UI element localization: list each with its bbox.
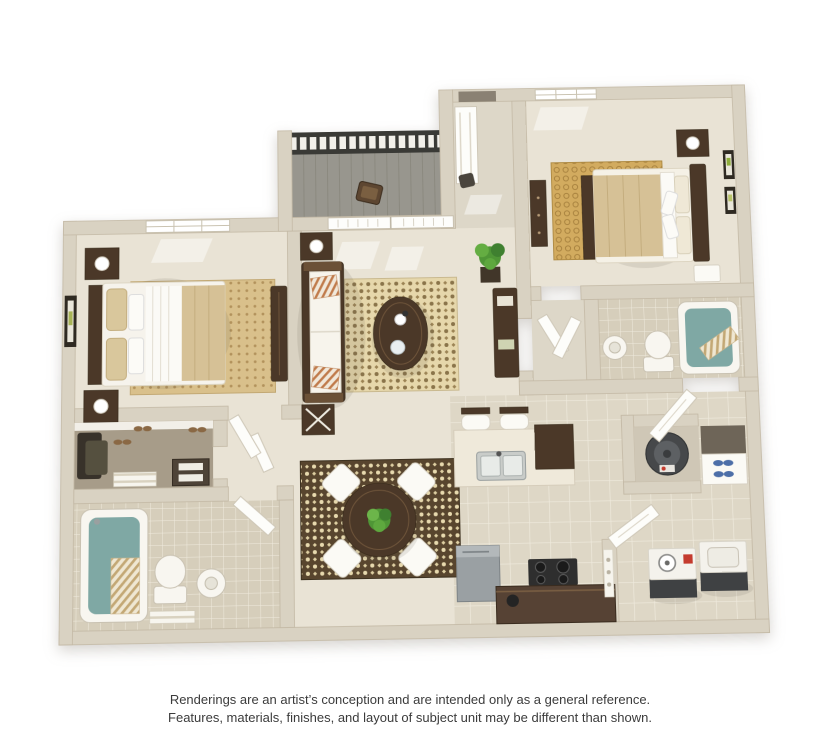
bed1-pillow-4 xyxy=(128,338,143,374)
end-table-south xyxy=(302,404,335,435)
coffee-table-tray xyxy=(391,340,405,354)
laundry-door-trim xyxy=(603,550,614,598)
front-door-opening xyxy=(458,91,496,102)
front-door-panel xyxy=(455,107,478,184)
bedroom2-bed xyxy=(581,164,710,269)
bathroom2-tub xyxy=(677,301,740,374)
bar-end-cabinet xyxy=(535,424,575,469)
bedroom2-window xyxy=(535,89,596,100)
block2-bottom-wall-b xyxy=(739,377,759,391)
bedroom2-wall-art-frame-1 xyxy=(723,150,735,179)
bathroom1-bath-mat xyxy=(150,610,195,623)
bedroom1-bed xyxy=(88,277,231,390)
bedroom2-nightstand xyxy=(676,129,709,156)
washer xyxy=(647,548,702,605)
console-books-2 xyxy=(498,339,514,349)
console-table xyxy=(493,288,519,378)
balcony-left-wall xyxy=(278,131,293,232)
railing-balusters xyxy=(297,132,438,153)
kitchen-lower-counter xyxy=(496,584,616,623)
living-lamp-icon xyxy=(310,240,323,253)
bed1-pillow-3 xyxy=(129,294,144,330)
cooktop xyxy=(528,558,578,586)
floor-plan-rendering xyxy=(38,84,790,667)
entry-left-wall xyxy=(439,90,456,229)
kitchen-sink xyxy=(477,451,526,481)
bedroom2-dresser xyxy=(530,180,548,246)
bar-stool-1 xyxy=(461,408,490,431)
closet-striped-mat xyxy=(114,472,157,487)
bathroom1-toilet xyxy=(154,555,187,604)
french-doors xyxy=(328,216,453,230)
bathroom1-tub xyxy=(80,509,148,623)
bedroom1-window xyxy=(146,220,230,233)
closet-right-wall-a xyxy=(213,420,227,446)
bathroom2-left-wall xyxy=(584,299,601,380)
bed1-pillow-1 xyxy=(107,289,127,331)
dryer-lid xyxy=(707,547,738,567)
bedroom2-bottom-wall-b xyxy=(581,283,754,300)
bedroom1-lamp-2-icon xyxy=(94,399,108,413)
bathroom1-top-wall-b xyxy=(277,486,293,501)
dining-area xyxy=(300,458,461,580)
bed1-duvet xyxy=(182,285,225,381)
closet-drawer-unit xyxy=(172,459,209,486)
dryer xyxy=(698,541,754,597)
sofa-pillow-2 xyxy=(311,366,340,390)
bedroom1-nightstand-1 xyxy=(85,248,119,280)
disclaimer-text: Renderings are an artist’s conception an… xyxy=(0,691,820,726)
bedroom1-wall-art-frame xyxy=(64,296,77,348)
page: Renderings are an artist’s conception an… xyxy=(0,0,820,740)
bathroom1-right-wall xyxy=(279,500,294,628)
disclaimer-line-2: Features, materials, finishes, and layou… xyxy=(0,709,820,727)
bathroom1-shower-curtain xyxy=(111,558,140,614)
bedroom1-lamp-1-icon xyxy=(95,257,109,271)
bed2-duvet xyxy=(593,174,665,257)
console-books-1 xyxy=(497,296,513,306)
bed1-headboard xyxy=(88,285,103,384)
bedroom2-bench xyxy=(694,265,721,282)
sofa-pillow-1 xyxy=(310,275,339,299)
bed1-pillow-2 xyxy=(106,338,126,380)
heater-closet-bottom-wall xyxy=(623,481,701,495)
washer-detergent xyxy=(683,554,693,563)
shoe-closet-interior xyxy=(700,425,746,454)
bathroom2-sink xyxy=(602,335,627,359)
end-table-north xyxy=(300,232,332,260)
floor-plan-svg xyxy=(38,84,790,667)
bedroom2-light-patch xyxy=(533,107,590,131)
bathroom1-sink xyxy=(197,569,226,598)
bedroom2-bottom-wall-a xyxy=(531,287,541,301)
shoe-shelf xyxy=(702,453,748,484)
breakfast-bar xyxy=(454,424,575,487)
block2-bottom-wall-a xyxy=(519,378,683,395)
disclaimer-line-1: Renderings are an artist’s conception an… xyxy=(0,691,820,709)
bathroom1-top-wall-a xyxy=(74,487,229,504)
balcony-railing xyxy=(292,130,440,155)
bedroom1-bottom-wall-b xyxy=(282,405,303,419)
bed1-sheet xyxy=(145,286,181,382)
refrigerator xyxy=(456,545,500,601)
bar-stool-2 xyxy=(500,407,529,430)
bedroom1-nightstand-2 xyxy=(84,390,119,423)
bedroom2-wall-art-frame-2 xyxy=(724,187,736,214)
bedroom1-armoire xyxy=(271,286,288,381)
bedroom2-lamp-icon xyxy=(686,137,699,150)
bedroom1-light-patch xyxy=(151,238,213,263)
